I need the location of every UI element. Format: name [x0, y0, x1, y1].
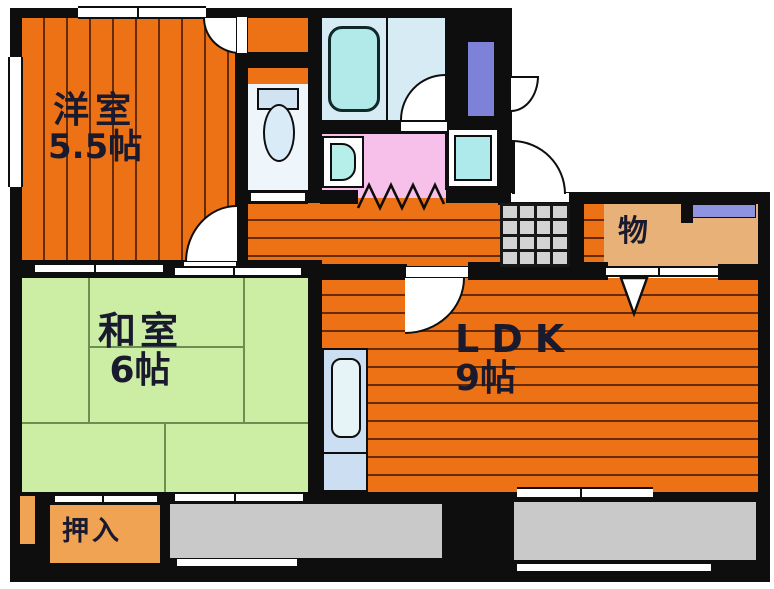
storage-label: 物 — [618, 216, 648, 248]
tatami-line — [243, 278, 245, 424]
japanese-room-balcony-window — [175, 492, 303, 503]
entrance-door-arc — [512, 140, 566, 194]
toilet-door — [250, 192, 306, 202]
storage-front-strip — [584, 203, 604, 267]
western-room-storage-nook — [248, 18, 308, 54]
western-room-closet-door-leaf — [236, 16, 248, 54]
tatami-line — [164, 424, 166, 493]
kitchen-counter — [322, 348, 368, 492]
japanese-room-label: 和室 6帖 — [98, 312, 182, 390]
entrance-tiles — [500, 203, 570, 267]
wall — [308, 260, 322, 500]
closet-label: 押入 — [62, 518, 122, 546]
balcony-left — [168, 502, 444, 560]
japanese-room-size: 6帖 — [98, 352, 182, 390]
wall — [322, 264, 407, 280]
ldk-balcony-window — [517, 487, 653, 499]
ldk-door-leaf — [405, 266, 469, 278]
kitchen-sink-icon — [331, 358, 361, 438]
wall — [570, 203, 584, 267]
meter-box-door-arc — [511, 76, 539, 112]
bathtub-icon — [328, 26, 380, 112]
ldk-size: 9帖 — [455, 360, 576, 398]
bath-threshold — [400, 121, 448, 132]
wall — [320, 190, 358, 204]
washbasin-icon — [330, 143, 356, 181]
storage-window — [692, 204, 756, 218]
ldk-name: LDK — [455, 320, 576, 360]
wall — [308, 8, 322, 203]
toilet-icon — [263, 104, 295, 162]
hallway-floor — [248, 203, 500, 267]
japanese-room-name: 和室 — [98, 312, 182, 352]
wall — [718, 264, 762, 280]
storage-door-swing-icon — [618, 277, 650, 317]
western-room-name: 洋室 — [48, 92, 142, 130]
floor-plan: 洋室 5.5帖 和室 6帖 LDK 9帖 物 押入 — [0, 0, 774, 589]
folding-door-icon — [356, 180, 448, 212]
storage-sliding-door — [606, 266, 718, 277]
closet-side-strip — [20, 496, 35, 544]
balcony-right — [512, 500, 758, 562]
japanese-room-west-sliding-door — [35, 263, 163, 274]
western-room-label: 洋室 5.5帖 — [48, 92, 142, 165]
japanese-room-hall-sliding-door — [175, 266, 301, 277]
toilet-shelf — [248, 68, 308, 84]
wall — [498, 8, 512, 205]
closet-sliding-door — [55, 494, 157, 504]
bathroom-divider — [386, 18, 388, 120]
tatami-line — [88, 278, 90, 424]
balcony-left-rail — [176, 558, 298, 567]
western-room-left-window — [8, 57, 23, 187]
washing-machine-pan-icon — [454, 135, 492, 181]
western-room-top-window — [78, 6, 206, 19]
water-heater-icon — [466, 40, 496, 118]
kitchen-counter-divider — [324, 452, 366, 454]
western-room-size: 5.5帖 — [48, 130, 142, 166]
balcony-right-rail — [516, 563, 712, 572]
wall — [243, 52, 308, 68]
wall — [560, 192, 770, 204]
ldk-label: LDK 9帖 — [455, 320, 576, 398]
